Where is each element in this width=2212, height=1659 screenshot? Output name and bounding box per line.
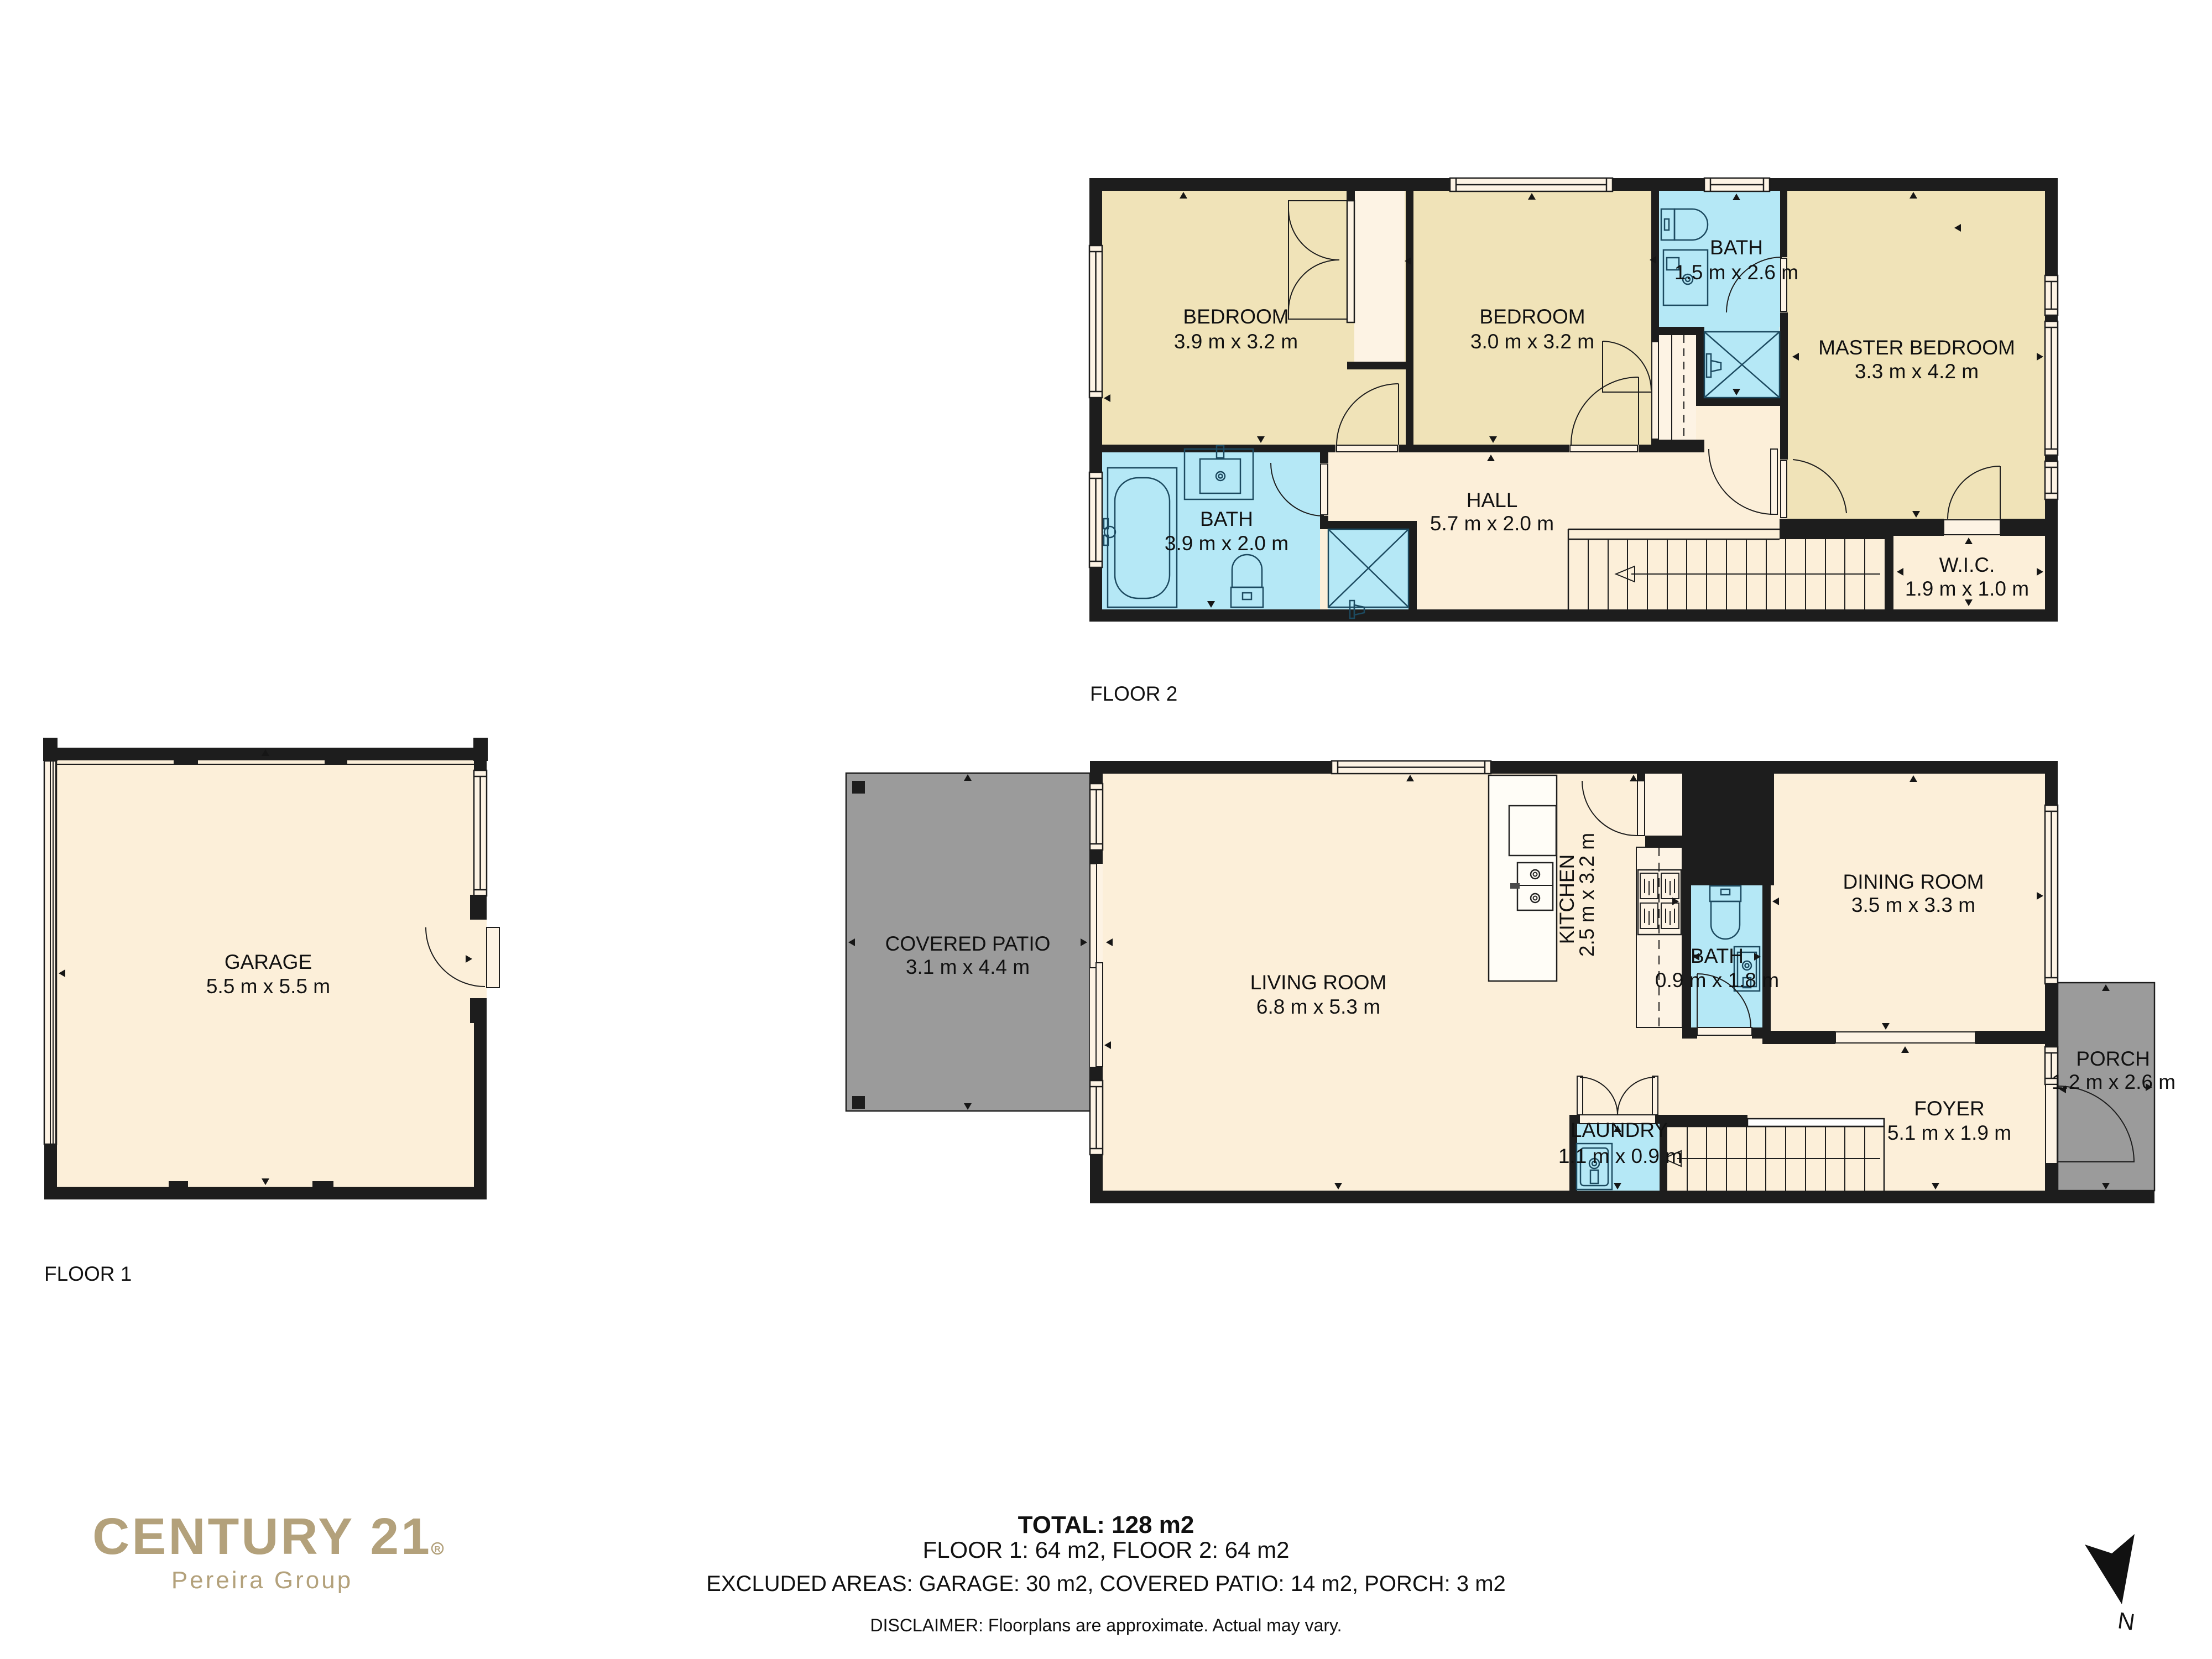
svg-text:1.5 m x 2.6 m: 1.5 m x 2.6 m (1674, 261, 1798, 284)
svg-text:2.5 m x 3.2 m: 2.5 m x 3.2 m (1575, 833, 1598, 957)
svg-text:3.5 m x 3.3 m: 3.5 m x 3.3 m (1851, 894, 1975, 916)
svg-text:0.9 m x 1.8 m: 0.9 m x 1.8 m (1655, 969, 1779, 992)
svg-text:GARAGE: GARAGE (225, 951, 312, 973)
svg-text:W.I.C.: W.I.C. (1939, 554, 1995, 576)
svg-text:3.1 m x 4.4 m: 3.1 m x 4.4 m (906, 956, 1030, 978)
svg-text:3.9 m x 2.0 m: 3.9 m x 2.0 m (1165, 532, 1288, 555)
svg-text:FOYER: FOYER (1914, 1097, 1984, 1120)
svg-text:BATH: BATH (1691, 945, 1744, 967)
svg-text:3.3 m x 4.2 m: 3.3 m x 4.2 m (1855, 360, 1979, 383)
svg-text:BEDROOM: BEDROOM (1479, 305, 1585, 328)
svg-text:1.2 m x 2.6 m: 1.2 m x 2.6 m (2052, 1071, 2176, 1093)
svg-text:LAUNDRY: LAUNDRY (1571, 1119, 1668, 1141)
svg-text:COVERED PATIO: COVERED PATIO (885, 932, 1051, 955)
svg-text:LIVING ROOM: LIVING ROOM (1250, 971, 1387, 994)
svg-text:DISCLAIMER: Floorplans are app: DISCLAIMER: Floorplans are approximate. … (870, 1615, 1342, 1635)
svg-text:5.7 m x 2.0 m: 5.7 m x 2.0 m (1430, 512, 1554, 535)
svg-text:PORCH: PORCH (2076, 1047, 2150, 1070)
svg-text:EXCLUDED AREAS: GARAGE: 30 m2,: EXCLUDED AREAS: GARAGE: 30 m2, COVERED P… (706, 1572, 1506, 1596)
svg-text:BEDROOM: BEDROOM (1183, 305, 1288, 328)
svg-text:BATH: BATH (1710, 236, 1763, 259)
svg-text:HALL: HALL (1467, 489, 1518, 512)
svg-text:BATH: BATH (1200, 508, 1253, 530)
svg-text:N: N (2116, 1607, 2137, 1635)
svg-text:5.5 m x 5.5 m: 5.5 m x 5.5 m (206, 975, 330, 998)
svg-text:DINING ROOM: DINING ROOM (1843, 870, 1984, 893)
svg-text:3.0 m x 3.2 m: 3.0 m x 3.2 m (1470, 330, 1594, 353)
svg-text:TOTAL: 128 m2: TOTAL: 128 m2 (1018, 1511, 1194, 1538)
svg-text:Pereira Group: Pereira Group (171, 1567, 353, 1594)
svg-text:FLOOR 2: FLOOR 2 (1090, 682, 1177, 705)
svg-text:CENTURY 21: CENTURY 21 (92, 1507, 432, 1565)
svg-text:FLOOR 1: FLOOR 1 (44, 1262, 132, 1285)
svg-text:R: R (435, 1545, 441, 1554)
svg-text:FLOOR 1: 64 m2, FLOOR 2: 64 m2: FLOOR 1: 64 m2, FLOOR 2: 64 m2 (923, 1537, 1290, 1563)
svg-text:1.1 m x 0.9 m: 1.1 m x 0.9 m (1558, 1145, 1682, 1167)
svg-text:MASTER BEDROOM: MASTER BEDROOM (1818, 336, 2015, 359)
svg-text:3.9 m x 3.2 m: 3.9 m x 3.2 m (1174, 330, 1298, 353)
svg-text:1.9 m x 1.0 m: 1.9 m x 1.0 m (1905, 577, 2029, 600)
svg-text:6.8 m x 5.3 m: 6.8 m x 5.3 m (1256, 995, 1380, 1018)
svg-text:KITCHEN: KITCHEN (1556, 854, 1578, 944)
svg-text:5.1 m x 1.9 m: 5.1 m x 1.9 m (1887, 1121, 2011, 1144)
